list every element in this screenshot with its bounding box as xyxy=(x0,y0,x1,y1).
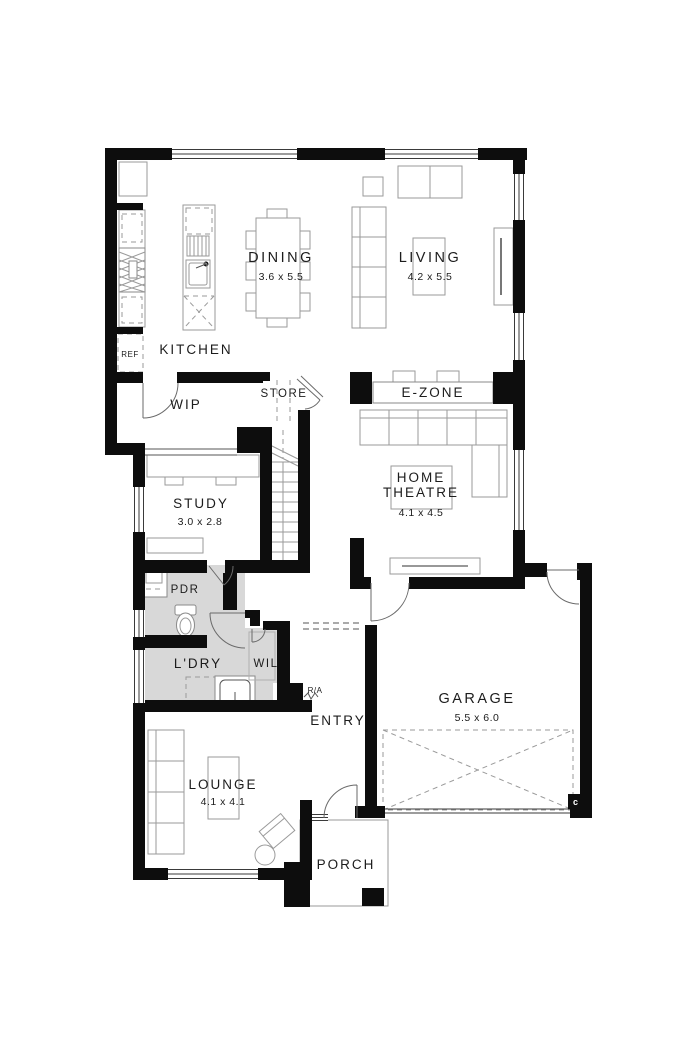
fridge-label: REF xyxy=(121,350,139,359)
lounge-armchair xyxy=(259,814,295,849)
dining-chair xyxy=(267,318,287,327)
window xyxy=(133,650,145,703)
window xyxy=(168,868,258,880)
windows xyxy=(133,148,525,880)
kitchen-tall-cabinet xyxy=(119,162,147,196)
dining-chair xyxy=(300,293,310,311)
room-label-wip: WIP xyxy=(170,397,202,412)
tv-unit-icon xyxy=(494,228,513,305)
corner-marker-label: c xyxy=(573,797,578,807)
window xyxy=(133,487,145,532)
room-label-kitchen: KITCHEN xyxy=(159,342,232,357)
room-dim-living: 4.2 x 5.5 xyxy=(408,271,453,283)
room-dim-garage: 5.5 x 6.0 xyxy=(455,712,500,724)
dining-chair xyxy=(267,209,287,218)
kitchen-cupboard-dashed xyxy=(122,297,142,323)
room-dim-dining: 3.6 x 5.5 xyxy=(259,271,304,283)
ezone-chair xyxy=(437,371,459,382)
room-label-wil: WIL xyxy=(254,658,279,670)
entry-bulkhead-dashes xyxy=(303,623,363,629)
room-label-study: STUDY xyxy=(173,496,229,511)
room-label-dining: DINING xyxy=(248,250,314,266)
room-dim-home-theatre: 4.1 x 4.5 xyxy=(399,507,444,519)
study-cabinet xyxy=(147,538,203,553)
garage-rear-door xyxy=(547,570,579,604)
dining-chair xyxy=(246,231,256,249)
living-side-table xyxy=(363,177,383,196)
study-chair xyxy=(216,477,236,485)
room-dim-study: 3.0 x 2.8 xyxy=(178,516,223,528)
room-label-living: LIVING xyxy=(399,250,462,266)
room-label-pdr: PDR xyxy=(171,584,200,596)
room-label-store: STORE xyxy=(261,388,308,400)
ezone-chair xyxy=(393,371,415,382)
dining-furniture xyxy=(246,209,310,327)
room-label-entry: ENTRY xyxy=(310,713,366,728)
garage-internal-door xyxy=(371,583,409,621)
window xyxy=(513,450,525,530)
theatre-sofa xyxy=(360,410,507,445)
window xyxy=(513,313,525,360)
dining-table xyxy=(256,218,300,318)
room-label-home-theatre-2: THEATRE xyxy=(383,485,459,500)
porch-column xyxy=(362,888,384,906)
window xyxy=(172,148,297,160)
study-chair xyxy=(165,477,183,485)
kitchen-cupboard-dashed xyxy=(122,214,142,242)
theatre-sofa-chaise xyxy=(472,445,507,497)
room-label-ldry: L'DRY xyxy=(174,656,222,671)
living-coffee-table xyxy=(413,238,445,295)
front-door xyxy=(324,785,357,818)
living-furniture xyxy=(352,166,513,328)
window xyxy=(513,174,525,220)
garage-markings xyxy=(383,730,573,813)
room-label-lounge: LOUNGE xyxy=(188,777,257,792)
return-air-label: R/A xyxy=(308,686,323,695)
lounge-round-table xyxy=(255,845,275,865)
theatre-tv-cabinet xyxy=(390,558,480,574)
dining-chair xyxy=(300,231,310,249)
room-label-ezone: E-ZONE xyxy=(401,385,464,400)
room-label-garage: GARAGE xyxy=(438,691,515,707)
dining-chair xyxy=(246,293,256,311)
floor-plan: KITCHEN DINING 3.6 x 5.5 LIVING 4.2 x 5.… xyxy=(0,0,700,1045)
floor-plan-canvas: KITCHEN DINING 3.6 x 5.5 LIVING 4.2 x 5.… xyxy=(0,0,700,1045)
room-label-porch: PORCH xyxy=(317,857,376,872)
cooktop-icon xyxy=(119,248,145,292)
window xyxy=(385,148,478,160)
sidelight-window xyxy=(312,813,328,822)
kitchen-fixtures xyxy=(118,162,215,372)
room-label-home-theatre-1: HOME xyxy=(397,470,446,485)
study-desk xyxy=(147,455,259,477)
toilet-icon xyxy=(175,605,196,637)
island-bench xyxy=(183,205,215,330)
room-dim-lounge: 4.1 x 4.1 xyxy=(201,796,246,808)
window xyxy=(133,610,145,637)
